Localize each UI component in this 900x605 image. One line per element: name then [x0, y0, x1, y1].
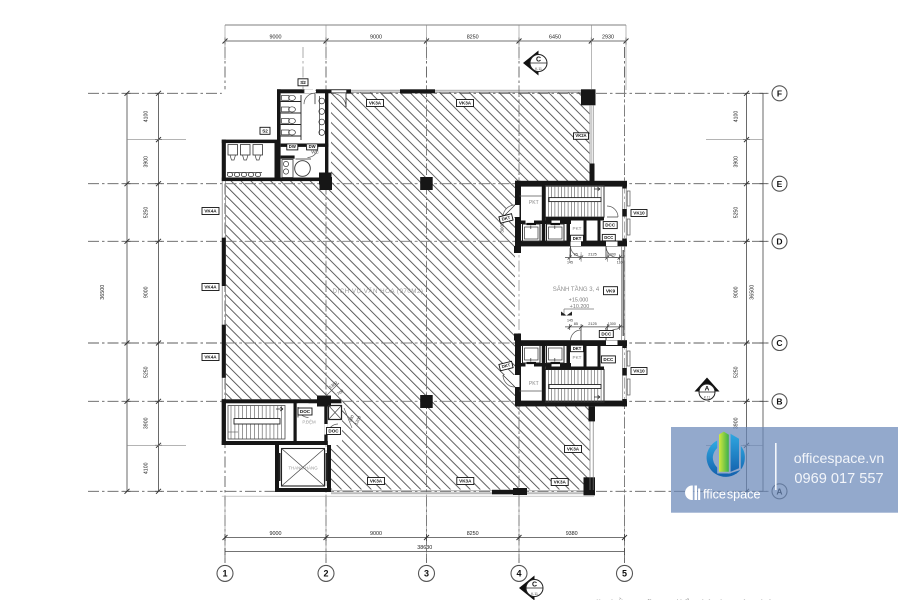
svg-text:VK3A: VK3A: [370, 479, 383, 484]
svg-text:4: 4: [516, 569, 521, 579]
svg-text:VK3A: VK3A: [369, 101, 382, 106]
svg-text:145: 145: [567, 261, 573, 265]
svg-text:SẢNH TẦNG 3, 4: SẢNH TẦNG 3, 4: [553, 286, 600, 293]
svg-text:PKT: PKT: [529, 200, 539, 206]
svg-text:9380: 9380: [566, 531, 578, 537]
svg-text:85: 85: [574, 322, 578, 326]
svg-text:9000: 9000: [370, 531, 382, 537]
svg-text:K.11: K.11: [531, 592, 538, 596]
svg-text:THANG HÀNG: THANG HÀNG: [288, 466, 318, 471]
svg-text:VK2A: VK2A: [575, 133, 586, 138]
svg-text:DCC: DCC: [605, 223, 616, 228]
svg-text:1300: 1300: [607, 322, 615, 326]
svg-text:S2: S2: [262, 128, 268, 133]
svg-text:DKT: DKT: [573, 346, 582, 351]
svg-text:3900: 3900: [734, 156, 740, 168]
svg-text:9000: 9000: [270, 35, 282, 41]
svg-text:110: 110: [617, 261, 623, 265]
svg-text:1300: 1300: [607, 253, 615, 257]
svg-text:DCC: DCC: [604, 235, 613, 240]
svg-text:145: 145: [567, 319, 573, 323]
svg-text:DCC: DCC: [603, 357, 614, 362]
svg-text:DCC: DCC: [601, 332, 612, 337]
svg-text:6450: 6450: [549, 35, 561, 41]
svg-text:DW: DW: [289, 144, 296, 149]
svg-text:3: 3: [424, 569, 429, 579]
svg-text:9000: 9000: [270, 531, 282, 537]
svg-text:C: C: [776, 338, 782, 348]
svg-text:DOC: DOC: [300, 409, 311, 414]
svg-text:D: D: [776, 236, 782, 246]
svg-text:F: F: [777, 88, 782, 98]
svg-text:3000: 3000: [500, 222, 505, 233]
svg-text:DW: DW: [309, 144, 316, 149]
svg-text:2125: 2125: [588, 322, 596, 326]
svg-text:2930: 2930: [602, 35, 614, 41]
svg-text:officespace.vn: officespace.vn: [794, 451, 884, 467]
svg-text:1: 1: [222, 569, 227, 579]
svg-text:+15.000: +15.000: [569, 298, 589, 304]
svg-text:4100: 4100: [144, 111, 150, 123]
svg-text:38630: 38630: [417, 545, 432, 551]
svg-text:2: 2: [323, 569, 328, 579]
svg-text:VK3A: VK3A: [459, 479, 472, 484]
svg-text:PKT: PKT: [573, 355, 582, 360]
svg-text:8250: 8250: [467, 35, 479, 41]
svg-text:PKT: PKT: [573, 226, 582, 231]
svg-text:VK3A: VK3A: [554, 480, 567, 485]
svg-text:A: A: [705, 386, 710, 393]
svg-text:9000: 9000: [144, 286, 150, 298]
svg-text:C: C: [532, 582, 537, 589]
svg-text:VK3A: VK3A: [567, 447, 580, 452]
svg-text:PKT: PKT: [529, 381, 539, 387]
svg-text:DOC: DOC: [328, 429, 339, 434]
svg-text:5250: 5250: [144, 366, 150, 378]
svg-text:VK4A: VK4A: [204, 285, 217, 290]
svg-text:E: E: [777, 179, 783, 189]
svg-text:VK4A: VK4A: [204, 209, 217, 214]
svg-text:DKT: DKT: [573, 236, 582, 241]
svg-text:2125: 2125: [588, 253, 596, 257]
svg-text:5: 5: [622, 569, 627, 579]
svg-text:4100: 4100: [144, 462, 150, 474]
svg-text:VK9: VK9: [606, 289, 616, 295]
svg-text:P.ĐỆM: P.ĐỆM: [302, 420, 316, 425]
svg-text:8250: 8250: [467, 531, 479, 537]
svg-text:fficespace: fficespace: [703, 488, 760, 502]
svg-text:4100: 4100: [734, 111, 740, 123]
svg-text:VK4A: VK4A: [204, 355, 217, 360]
svg-text:K.11: K.11: [535, 67, 542, 71]
svg-text:B: B: [776, 396, 782, 406]
svg-text:VK10: VK10: [633, 369, 645, 374]
svg-text:VK3A: VK3A: [459, 101, 472, 106]
svg-text:0969 017 557: 0969 017 557: [794, 471, 883, 487]
svg-text:5250: 5250: [734, 207, 740, 219]
svg-text:DỊCH VỤ VĂN HÓA (970M2): DỊCH VỤ VĂN HÓA (970M2): [333, 288, 424, 295]
svg-text:5250: 5250: [144, 207, 150, 219]
svg-text:3900: 3900: [144, 156, 150, 168]
svg-text:36500: 36500: [750, 285, 756, 300]
svg-text:9000: 9000: [370, 35, 382, 41]
svg-text:5250: 5250: [734, 366, 740, 378]
svg-text:3900: 3900: [144, 417, 150, 429]
svg-text:36500: 36500: [100, 285, 106, 300]
svg-text:9000: 9000: [734, 286, 740, 298]
svg-text:C: C: [536, 57, 541, 64]
svg-text:VK10: VK10: [633, 211, 645, 216]
svg-text:K.11: K.11: [704, 396, 711, 400]
